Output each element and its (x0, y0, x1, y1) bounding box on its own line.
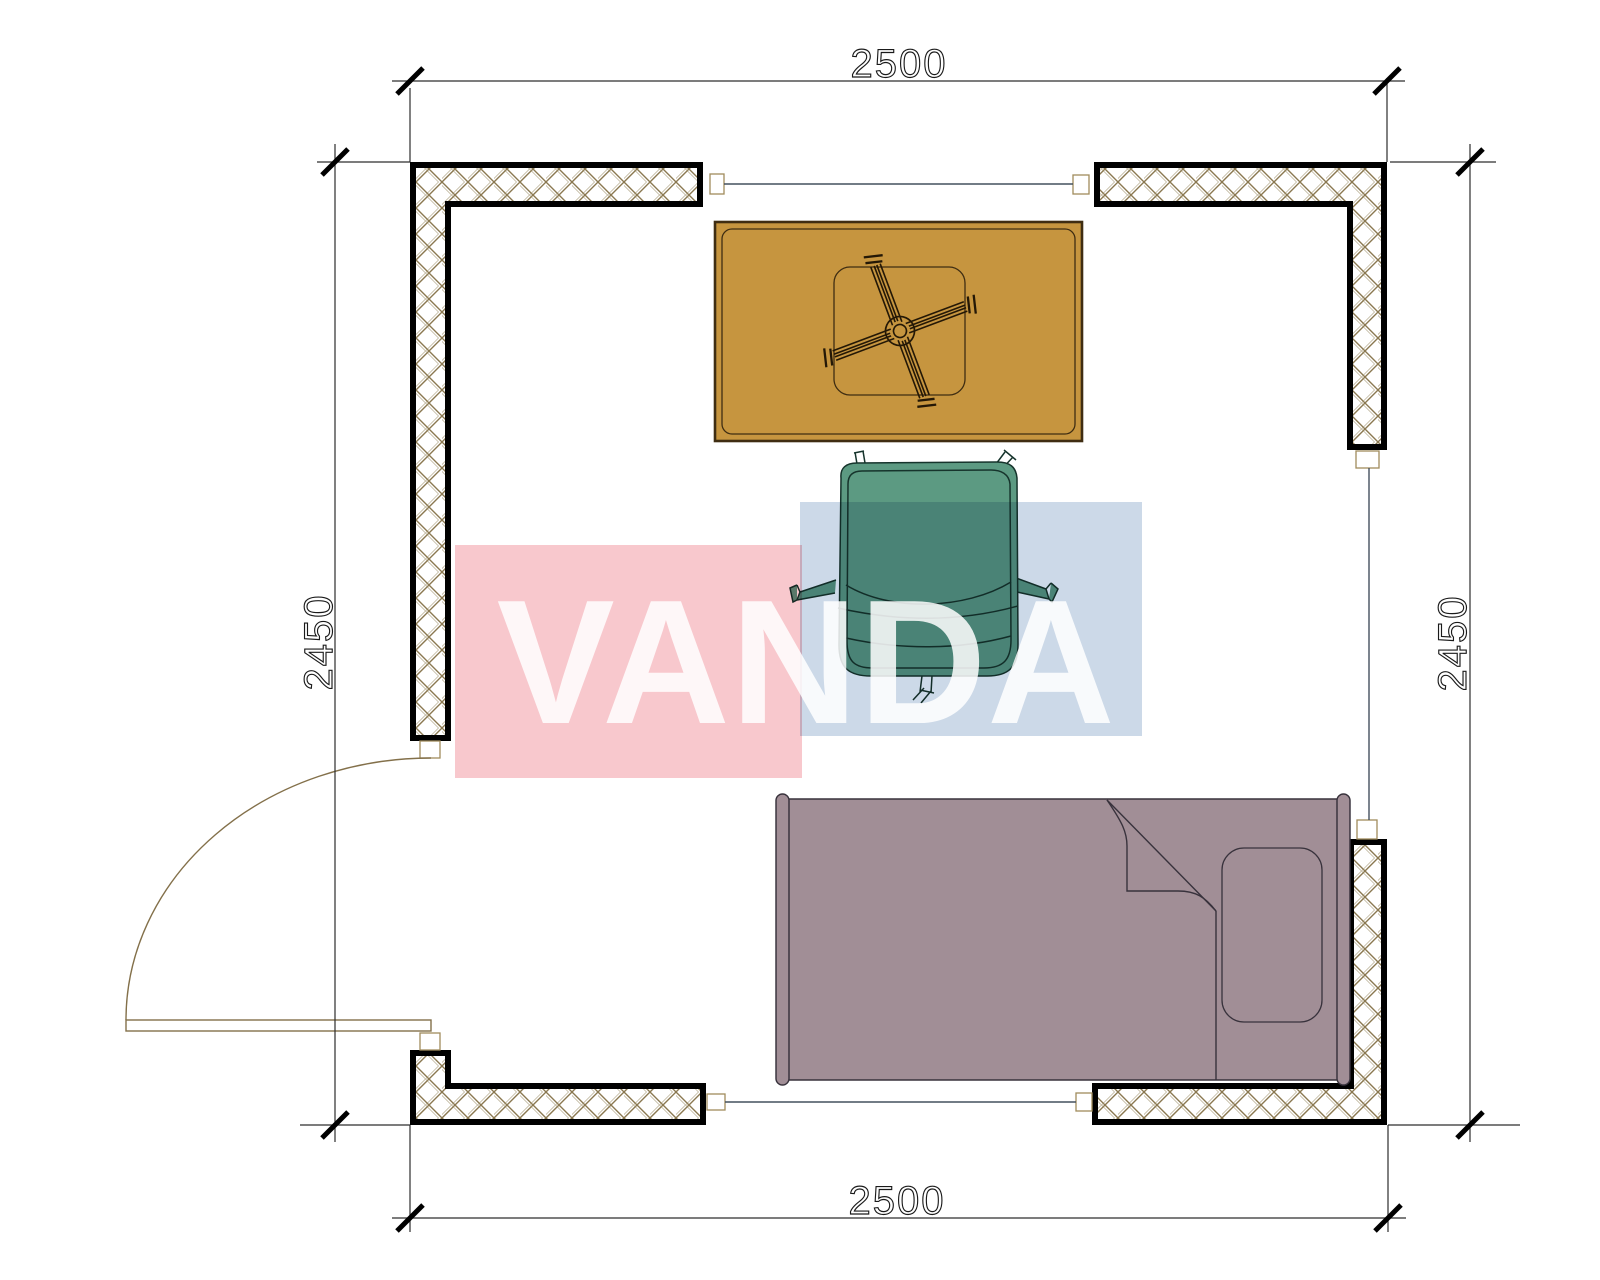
svg-text:2500: 2500 (851, 42, 948, 86)
svg-text:2450: 2450 (1431, 595, 1475, 692)
svg-text:VANDA: VANDA (497, 563, 1116, 761)
svg-text:2450: 2450 (297, 594, 341, 691)
svg-text:2500: 2500 (849, 1179, 946, 1223)
